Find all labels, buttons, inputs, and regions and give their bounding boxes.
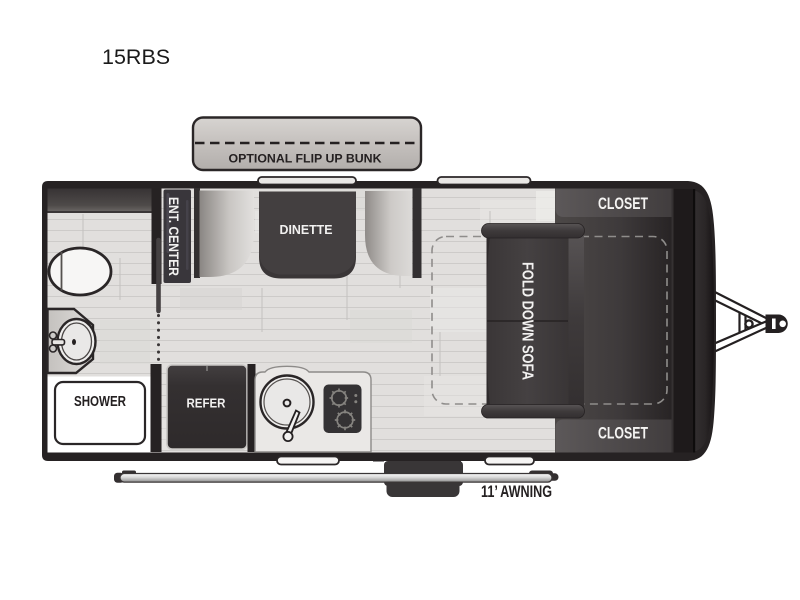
svg-text:OPTIONAL FLIP UP BUNK: OPTIONAL FLIP UP BUNK — [229, 152, 382, 166]
svg-text:DINETTE: DINETTE — [280, 222, 333, 237]
svg-text:REFER: REFER — [187, 397, 226, 411]
svg-text:11’ AWNING: 11’ AWNING — [481, 483, 552, 501]
svg-text:15RBS: 15RBS — [102, 45, 170, 69]
svg-text:FOLD DOWN SOFA: FOLD DOWN SOFA — [519, 262, 536, 380]
svg-text:ENT. CENTER: ENT. CENTER — [166, 197, 182, 276]
svg-text:CLOSET: CLOSET — [598, 194, 648, 213]
svg-text:CLOSET: CLOSET — [598, 424, 648, 443]
svg-text:SHOWER: SHOWER — [74, 394, 126, 410]
